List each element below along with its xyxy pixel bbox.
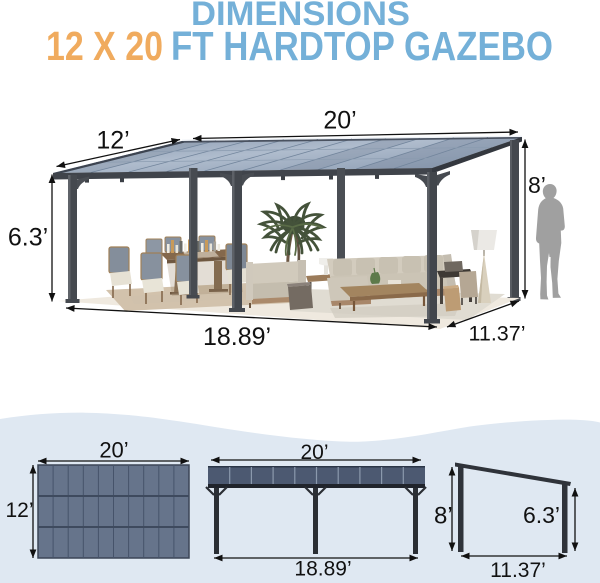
svg-text:12’: 12’ — [5, 499, 33, 522]
svg-text:8’: 8’ — [434, 503, 453, 530]
svg-text:FT HARDTOP GAZEBO: FT HARDTOP GAZEBO — [171, 23, 553, 69]
svg-text:12 X 20: 12 X 20 — [46, 23, 163, 69]
svg-text:20’: 20’ — [323, 107, 356, 135]
svg-text:6.3’: 6.3’ — [523, 502, 560, 528]
svg-text:6.3’: 6.3’ — [8, 224, 48, 252]
svg-text:20’: 20’ — [99, 438, 128, 463]
svg-text:11.37’: 11.37’ — [469, 322, 526, 346]
svg-text:11.37’: 11.37’ — [490, 559, 546, 582]
svg-text:12’: 12’ — [96, 127, 129, 155]
svg-text:20’: 20’ — [300, 441, 328, 464]
svg-text:8’: 8’ — [528, 172, 546, 198]
svg-text:18.89’: 18.89’ — [294, 558, 351, 581]
svg-text:18.89’: 18.89’ — [203, 323, 271, 351]
